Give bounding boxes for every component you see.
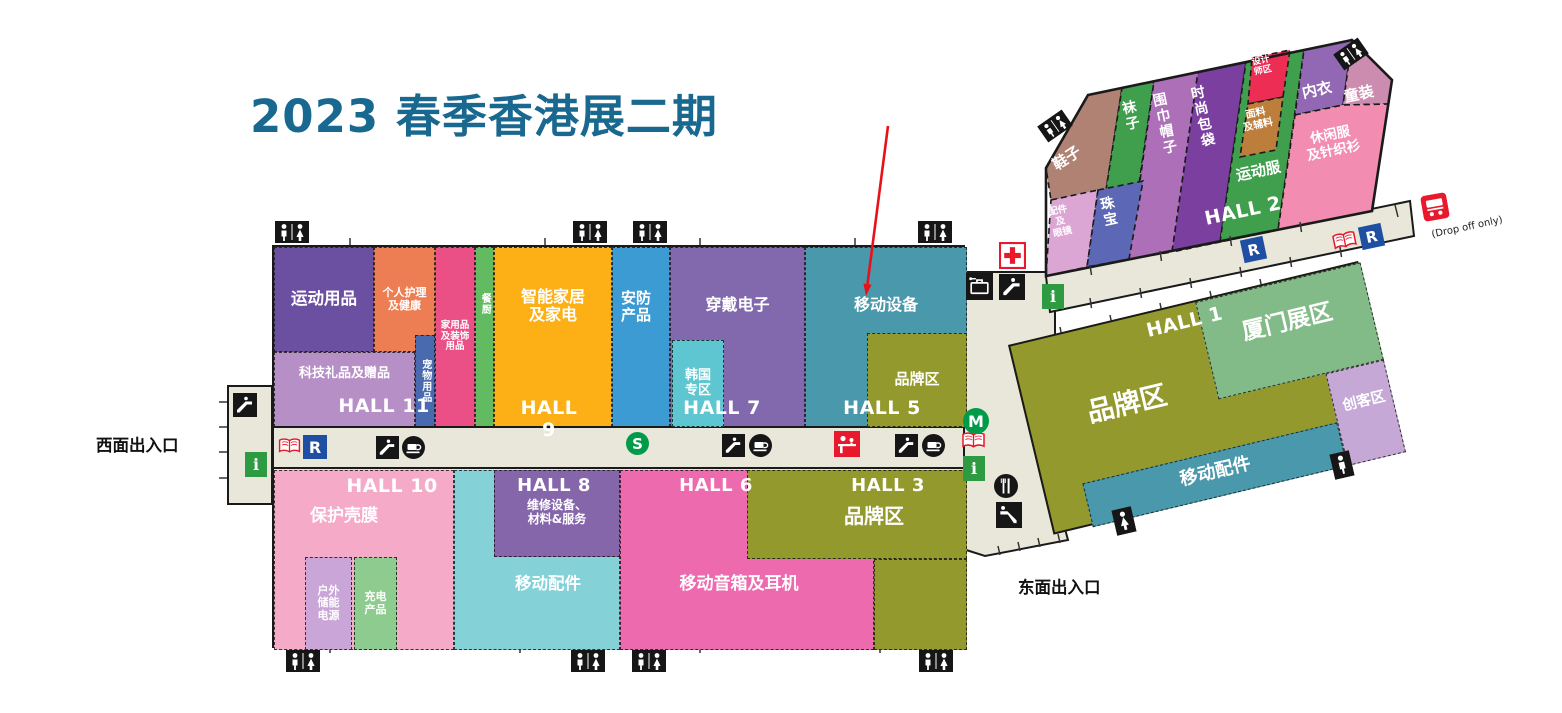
station-s-icon-letter: S — [632, 435, 643, 453]
mtr-m-icon: M — [963, 408, 989, 434]
region-sports-goods-label: 运动用品 — [291, 290, 357, 309]
info-icon-letter: i — [253, 455, 259, 474]
region-kitchen-dining-label: 餐厨 — [479, 293, 491, 315]
info-icon: i — [1042, 284, 1064, 309]
region-brand-zone-h1-label: 品牌区 — [1065, 375, 1189, 433]
region-household-decor: 家用品 及装饰 用品 — [435, 247, 475, 427]
coffee-icon — [922, 434, 945, 457]
east-entrance-label: 东面出入口 — [1018, 574, 1101, 598]
hall-9-label: HALL 9 — [514, 397, 584, 441]
escalator-icon — [996, 502, 1022, 528]
restaurant-icon: R — [303, 435, 327, 459]
west-entrance-label: 西面出入口 — [96, 432, 179, 456]
info-icon: i — [963, 456, 985, 481]
restroom-icon — [571, 650, 605, 672]
restroom-icon — [275, 221, 309, 243]
escalator-icon — [895, 434, 918, 457]
region-wearable-electronics-label: 穿戴电子 — [671, 296, 804, 314]
region-security-products: 安防 产品 — [612, 247, 670, 427]
hall-11-label: HALL 11 — [329, 395, 439, 417]
escalator-icon — [999, 274, 1025, 300]
luggage-icon — [966, 273, 993, 300]
coffee-icon — [402, 436, 425, 459]
escalator-icon — [722, 434, 745, 457]
region-mobile-devices-label: 移动设备 — [806, 296, 966, 314]
region-tech-gifts-label: 科技礼品及赠品 — [275, 367, 414, 382]
restaurant-icon: R — [1358, 223, 1385, 250]
hall-10-label: HALL 10 — [336, 475, 448, 497]
region-outdoor-power: 户外 储能 电源 — [305, 557, 352, 650]
region-korea-zone-label: 韩国 专区 — [685, 369, 711, 399]
restaurant-icon-letter: R — [309, 438, 321, 457]
region-mobile-accessories-h8-label: 移动配件 — [502, 575, 594, 594]
region-security-products-label: 安防 产品 — [613, 290, 669, 325]
region-personal-care-label: 个人护理 及健康 — [383, 287, 427, 312]
region-sports-goods: 运动用品 — [274, 247, 374, 352]
region-brand-zone-h5-label: 品牌区 — [894, 371, 939, 388]
region-repair-services-label: 维修设备、 材料&服务 — [500, 499, 614, 527]
restaurant-icon-letter: R — [1364, 226, 1379, 246]
escalator-icon — [233, 393, 257, 417]
hall-6-label: HALL 6 — [674, 475, 758, 496]
info-icon-letter: i — [1050, 287, 1056, 306]
bus-icon — [1420, 192, 1450, 222]
hall-5-label: HALL 5 — [842, 397, 922, 419]
region-kitchen-dining: 餐厨 — [475, 247, 494, 427]
region-outdoor-power-label: 户外 储能 电源 — [318, 585, 340, 623]
restroom-icon — [918, 221, 952, 243]
hall-8-label: HALL 8 — [514, 475, 594, 496]
restroom-icon — [633, 221, 667, 243]
restroom-icon — [573, 221, 607, 243]
region-charging-products: 充电 产品 — [354, 557, 397, 650]
book-icon — [276, 436, 303, 456]
info-icon-letter: i — [971, 459, 977, 478]
hall-7-label: HALL 7 — [682, 397, 762, 419]
restroom-icon — [919, 650, 953, 672]
map-title: 2023 春季香港展二期 — [250, 80, 718, 145]
region-household-decor-label: 家用品 及装饰 用品 — [441, 321, 470, 354]
hall-3-label: HALL 3 — [846, 475, 930, 496]
corridor-south-wall — [274, 467, 967, 469]
region-brand-zone-h3-lower — [874, 559, 967, 650]
first-aid-icon — [999, 242, 1026, 269]
restaurant-icon: R — [1240, 236, 1267, 263]
coffee-icon — [749, 434, 772, 457]
service-counter-icon — [834, 431, 860, 457]
corridor-north-wall — [274, 426, 967, 428]
escalator-icon — [376, 436, 399, 459]
region-brand-zone-h3-label: 品牌区 — [819, 505, 929, 528]
fork-knife-icon — [994, 474, 1018, 498]
mtr-m-icon-letter: M — [968, 412, 984, 431]
region-smart-home-label: 智能家居 及家电 — [495, 288, 611, 325]
floor-plan-canvas: 2023 春季香港展二期 西面出入口 东面出入口 运动用品 个人护理 及健康 科… — [0, 0, 1562, 713]
region-protective-cases-label: 保护壳膜 — [294, 507, 394, 527]
restroom-icon — [286, 650, 320, 672]
station-s-icon: S — [626, 432, 649, 455]
region-charging-products-label: 充电 产品 — [365, 591, 387, 616]
restaurant-icon-letter: R — [1246, 239, 1261, 259]
info-icon: i — [245, 452, 267, 477]
restroom-icon — [632, 650, 666, 672]
region-speakers-headphones-label: 移动音箱及耳机 — [652, 575, 826, 595]
